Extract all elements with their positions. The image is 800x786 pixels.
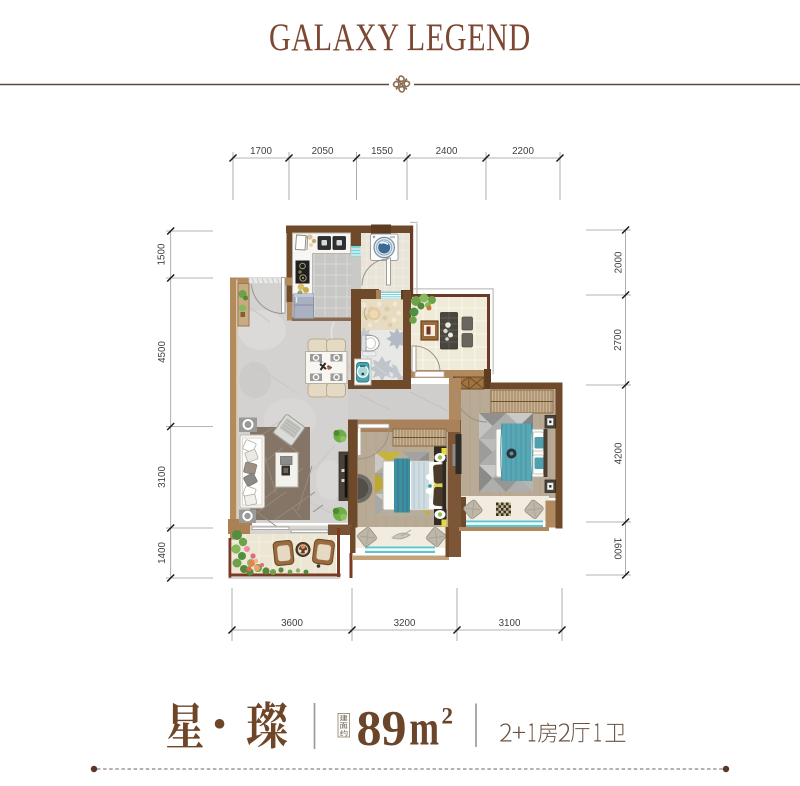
svg-text:2400: 2400	[436, 146, 458, 157]
svg-text:3600: 3600	[281, 618, 303, 629]
svg-text:GALAXY LEGEND: GALAXY LEGEND	[269, 15, 531, 59]
svg-text:3100: 3100	[499, 618, 521, 629]
svg-text:2050: 2050	[312, 146, 334, 157]
svg-text:2: 2	[442, 704, 454, 729]
svg-text:1700: 1700	[250, 146, 272, 157]
svg-text:89: 89	[357, 700, 407, 756]
svg-text:4500: 4500	[157, 341, 168, 363]
svg-text:2000: 2000	[614, 251, 625, 273]
svg-text:3200: 3200	[394, 618, 416, 629]
svg-text:2200: 2200	[512, 146, 534, 157]
svg-text:1400: 1400	[157, 542, 168, 564]
svg-text:1550: 1550	[371, 146, 393, 157]
svg-text:2700: 2700	[613, 329, 624, 351]
svg-text:1500: 1500	[157, 243, 168, 265]
svg-text:4200: 4200	[614, 442, 625, 464]
svg-text:1600: 1600	[612, 538, 623, 560]
svg-text:3100: 3100	[157, 466, 168, 488]
svg-text:m: m	[409, 701, 439, 756]
